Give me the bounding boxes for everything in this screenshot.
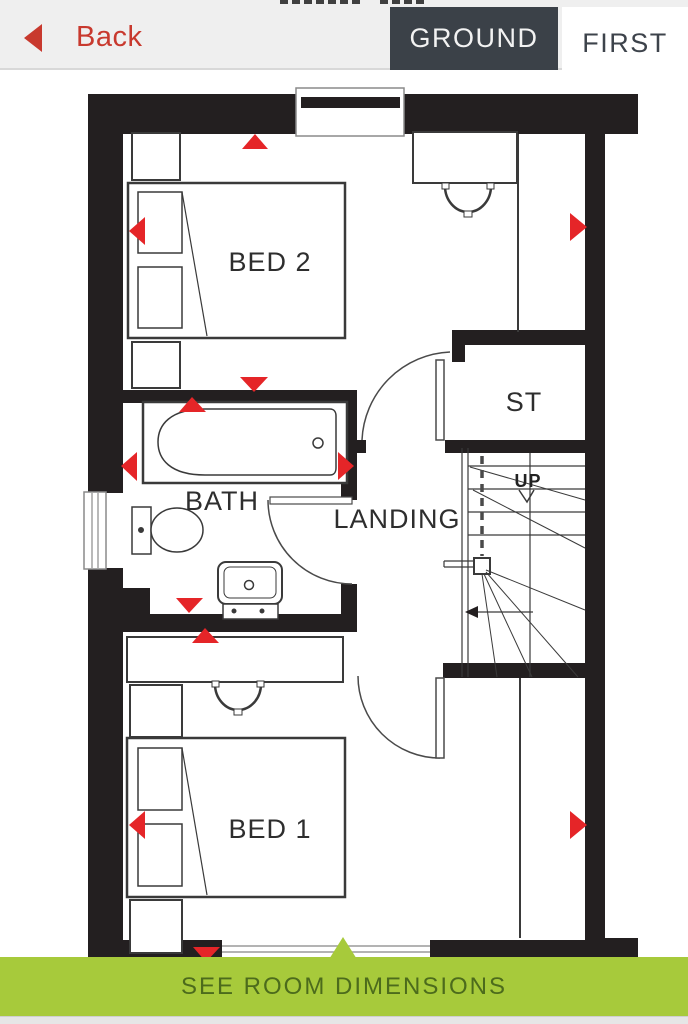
window-bottom — [222, 940, 430, 958]
chair-icon — [445, 186, 491, 212]
drain — [313, 438, 323, 448]
tab-ground[interactable]: GROUND — [390, 7, 558, 70]
bed2-door — [362, 352, 450, 440]
wardrobe — [132, 342, 180, 388]
marker-right-icon — [570, 811, 587, 839]
up-arrowhead-icon — [519, 490, 534, 502]
room-label-bed1: BED 1 — [228, 814, 311, 844]
back-label: Back — [76, 21, 142, 54]
pillow — [138, 748, 182, 810]
stair-direction-arrow-icon — [465, 606, 478, 618]
tab-ground-label: GROUND — [410, 23, 539, 54]
bottom-strip — [0, 1016, 688, 1024]
marker-down-icon — [176, 598, 203, 613]
see-room-dimensions-button[interactable]: SEE ROOM DIMENSIONS — [0, 957, 688, 1016]
desk — [127, 637, 343, 682]
stairs-up-label: UP — [514, 471, 541, 491]
see-room-dimensions-label: SEE ROOM DIMENSIONS — [181, 973, 507, 1001]
wardrobe — [130, 900, 182, 953]
back-button[interactable]: Back — [24, 0, 142, 70]
desk — [413, 132, 517, 183]
wardrobe — [130, 685, 182, 737]
room-label-st: ST — [506, 387, 543, 417]
bed1-door — [358, 676, 444, 758]
room-label-bath: BATH — [185, 486, 259, 516]
floorplan: BED 2 BATH LANDING ST BED 1 UP — [0, 0, 688, 1024]
chair-icon — [215, 684, 261, 710]
tab-first-label: FIRST — [582, 28, 668, 59]
bed1-furniture — [127, 637, 345, 953]
tab-first[interactable]: FIRST — [562, 7, 688, 80]
marker-right-icon — [570, 213, 587, 241]
marker-left-icon — [121, 452, 137, 481]
pillow — [138, 267, 182, 328]
window-top — [296, 88, 404, 136]
room-label-landing: LANDING — [333, 504, 460, 534]
wardrobe — [132, 133, 180, 180]
partition-lines — [518, 134, 520, 938]
room-label-bed2: BED 2 — [228, 247, 311, 277]
window-left — [84, 492, 123, 569]
marker-up-icon — [242, 134, 268, 149]
marker-down-icon — [240, 377, 268, 392]
newel-post — [474, 558, 490, 574]
back-arrow-icon — [24, 24, 42, 52]
